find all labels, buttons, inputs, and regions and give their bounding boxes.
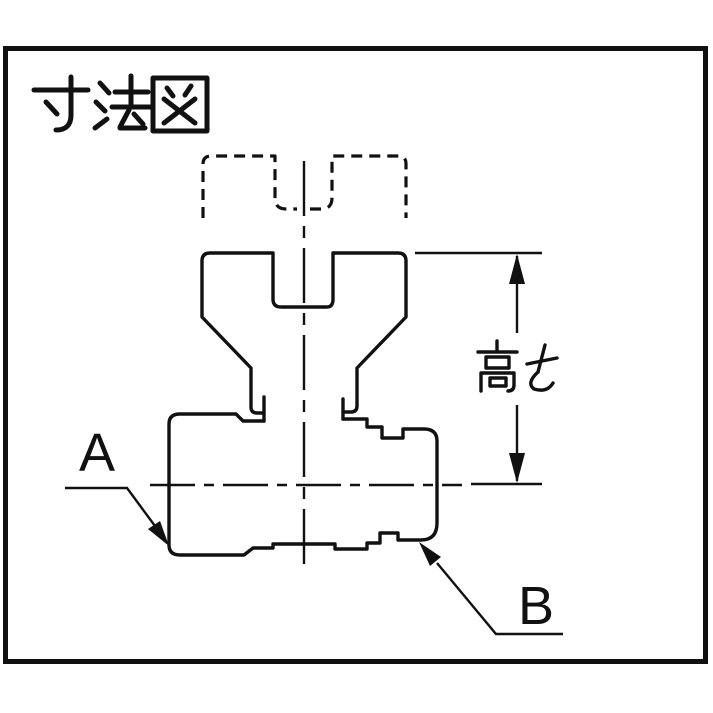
height-dimension-label: 高さ [476, 346, 568, 398]
dimension-diagram: 寸法図 [0, 0, 713, 713]
part-label-b: B [518, 576, 554, 636]
dimension-diagram-page: 寸法図 [0, 0, 713, 713]
page-title: 寸法図 [33, 78, 207, 143]
part-label-a: A [79, 423, 115, 483]
